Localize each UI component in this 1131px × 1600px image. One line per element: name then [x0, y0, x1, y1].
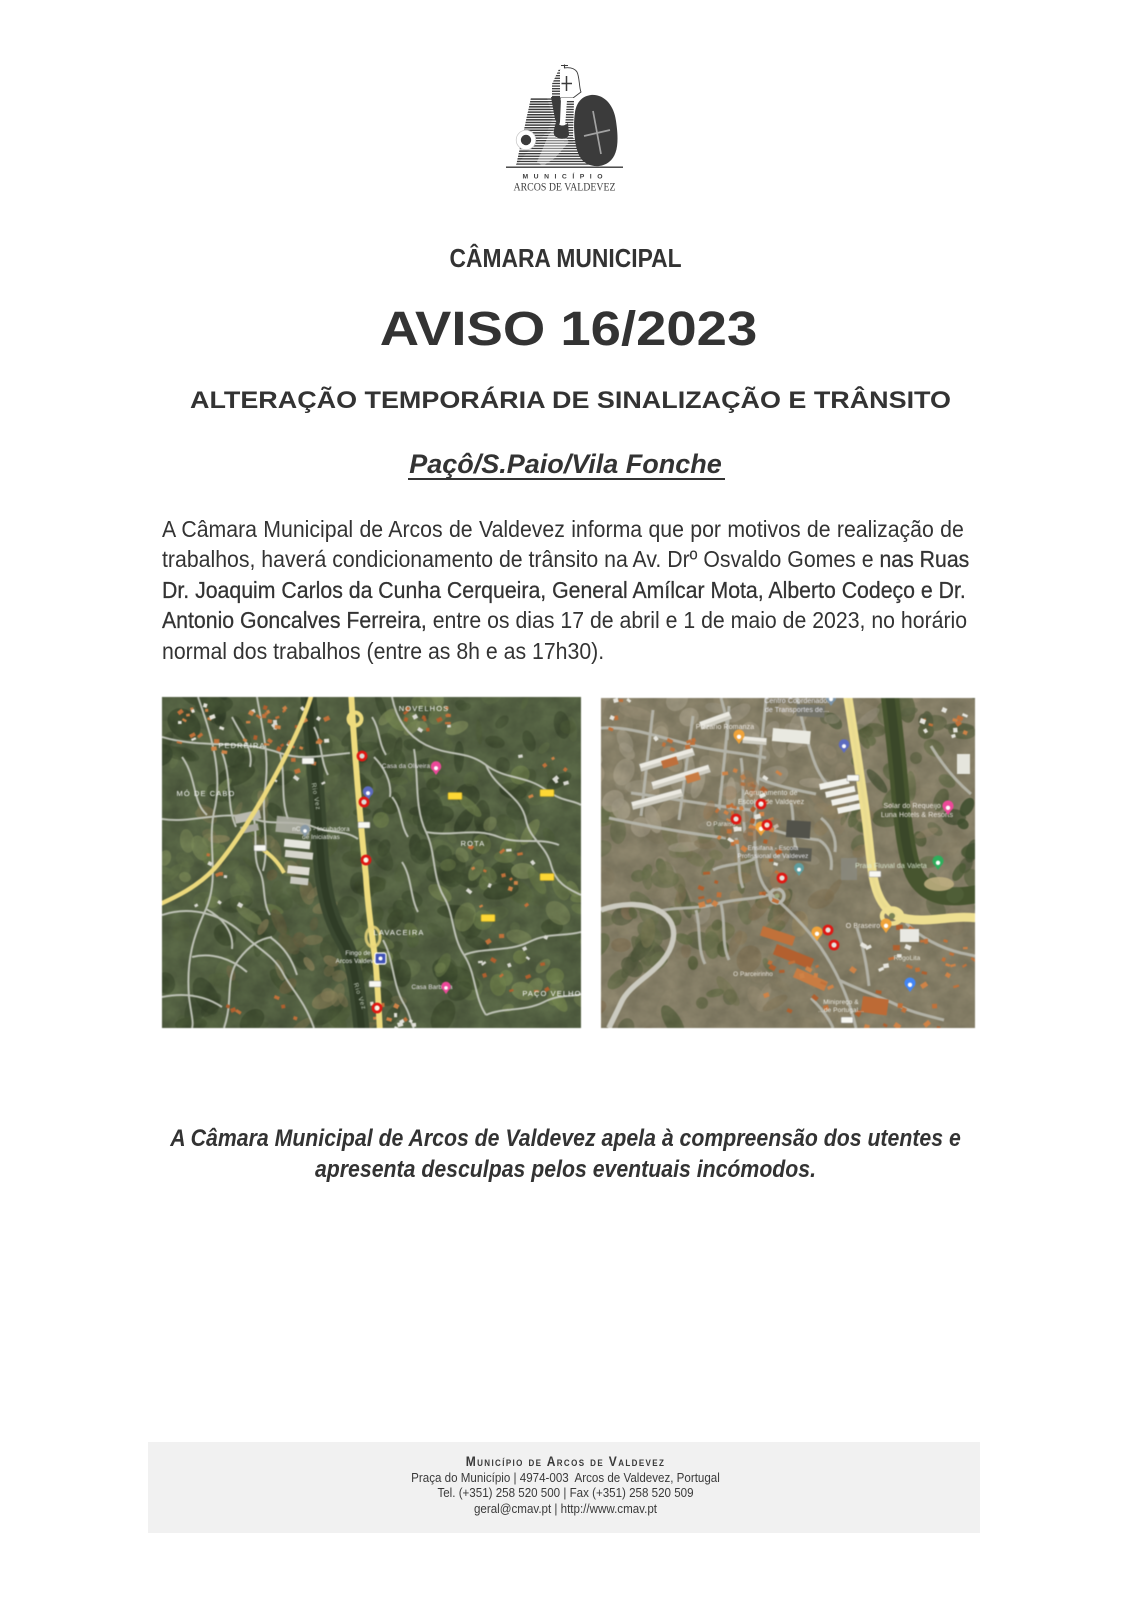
svg-text:ARCOS DE VALDEVEZ: ARCOS DE VALDEVEZ	[514, 182, 616, 194]
svg-text:ROTA: ROTA	[461, 839, 486, 848]
svg-text:O Braseiro: O Braseiro	[846, 923, 880, 930]
svg-text:Luna Hotels & Resorts: Luna Hotels & Resorts	[881, 812, 954, 819]
svg-text:Agrupamento de: Agrupamento de	[744, 790, 797, 797]
svg-text:Centro Coordenador: Centro Coordenador	[764, 698, 830, 705]
svg-text:O Paraiso: O Paraiso	[707, 821, 736, 828]
svg-text:Escolas de Valdevez: Escolas de Valdevez	[738, 799, 805, 806]
svg-text:Solar do Requeijo by: Solar do Requeijo by	[884, 803, 951, 810]
svg-text:de Iniciativas: de Iniciativas	[302, 834, 340, 841]
svg-text:PAÇO VELHO: PAÇO VELHO	[522, 989, 581, 998]
svg-text:RogoLita: RogoLita	[894, 955, 921, 962]
svg-text:Ensifana - Escola: Ensifana - Escola	[748, 845, 799, 852]
svg-text:Pizzario Romanza: Pizzario Romanza	[696, 724, 754, 731]
svg-text:O Parceirinho: O Parceirinho	[733, 971, 773, 978]
svg-text:Minipreço &: Minipreço &	[823, 999, 859, 1006]
svg-text:MUNICÍPIO: MUNICÍPIO	[523, 172, 607, 181]
svg-text:Arcos Valdevez: Arcos Valdevez	[336, 958, 381, 965]
svg-text:Profissional de Valdevez: Profissional de Valdevez	[738, 853, 809, 860]
svg-text:Fingo de: Fingo de	[345, 950, 371, 957]
svg-text:LAVACEIRA: LAVACEIRA	[374, 928, 425, 937]
svg-text:PEDREIRA: PEDREIRA	[218, 741, 265, 750]
svg-text:Praia Fluvial da Valeta: Praia Fluvial da Valeta	[855, 863, 927, 870]
svg-text:Casa da Oliveira: Casa da Oliveira	[382, 763, 431, 770]
svg-text:...de Portugal...: ...de Portugal...	[818, 1007, 864, 1014]
svg-text:MÓ DE CABO: MÓ DE CABO	[177, 789, 236, 798]
svg-text:NOVELHOS: NOVELHOS	[399, 704, 449, 713]
svg-text:de Transportes de...: de Transportes de...	[765, 707, 829, 714]
